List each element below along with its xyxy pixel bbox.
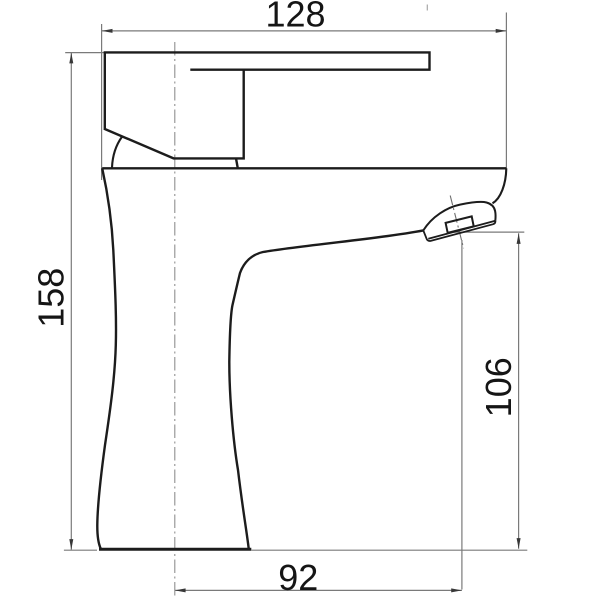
svg-text:92: 92 [278,557,318,598]
svg-text:128: 128 [265,0,325,35]
svg-text:106: 106 [478,357,519,417]
svg-text:158: 158 [31,268,72,328]
